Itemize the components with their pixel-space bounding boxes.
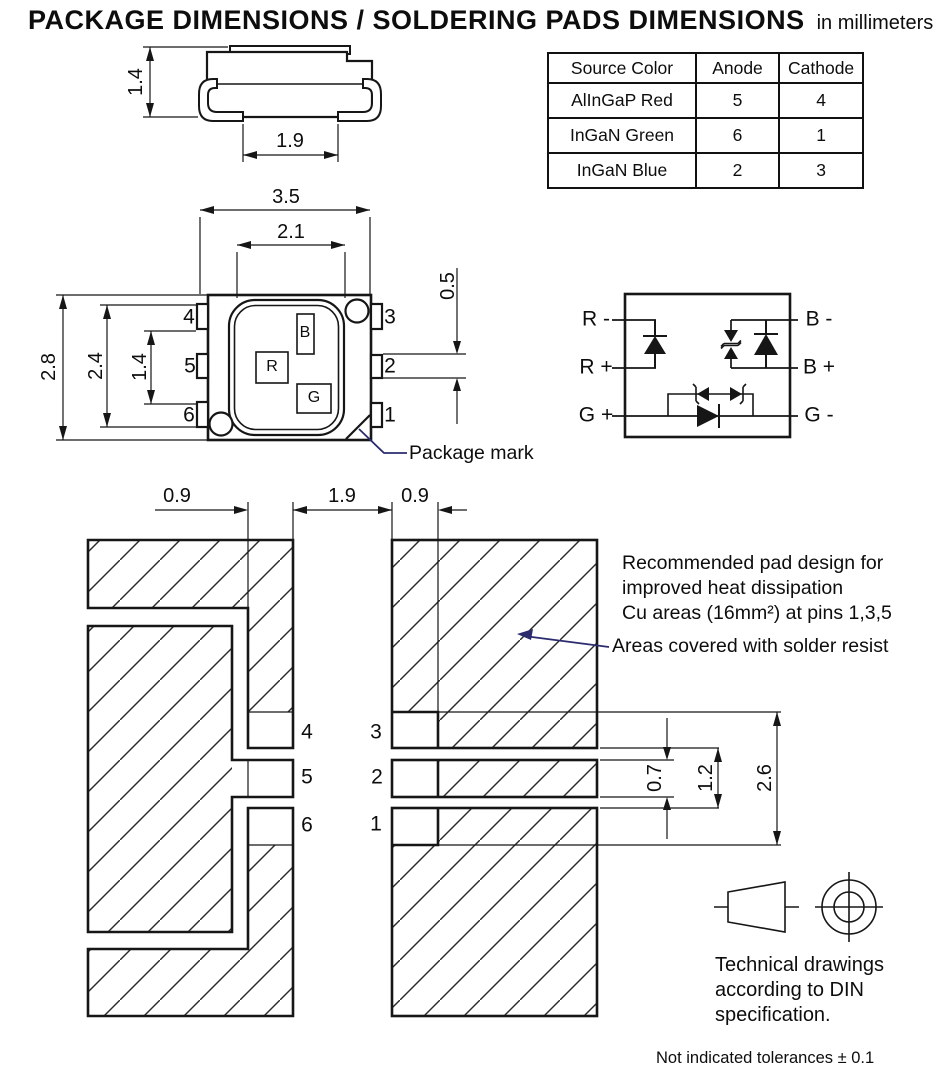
table-row: AlInGaP Red 5 4: [548, 83, 863, 118]
cell-anode: 5: [696, 83, 779, 118]
table-row: InGaN Blue 2 3: [548, 153, 863, 188]
pinout-table: Source Color Anode Cathode AlInGaP Red 5…: [547, 52, 864, 189]
pad-pin-label-6: 6: [301, 815, 313, 836]
pad-pin-label-1: 1: [370, 814, 382, 835]
side-view-drawing: [143, 46, 381, 162]
package-mark-label: Package mark: [409, 443, 534, 463]
top-view-drawing: [56, 206, 466, 453]
terminal-r-plus: R +: [579, 357, 612, 378]
page-title-main: PACKAGE DIMENSIONS / SOLDERING PADS DIME…: [28, 5, 805, 36]
pin-label-5: 5: [184, 356, 196, 377]
table-header-anode: Anode: [696, 53, 779, 83]
blue-led-symbol: [754, 334, 778, 355]
first-angle-cone-icon: [728, 882, 785, 932]
cell-anode: 6: [696, 118, 779, 153]
cell-cathode: 1: [779, 118, 863, 153]
green-led-symbol: [697, 405, 719, 427]
page-title: PACKAGE DIMENSIONS / SOLDERING PADS DIME…: [28, 5, 933, 36]
pin-label-2: 2: [384, 356, 396, 377]
cell-source: InGaN Green: [548, 118, 696, 153]
terminal-g-plus: G +: [579, 405, 613, 426]
protection-diode: [724, 347, 738, 359]
pad-design-note-line3: Cu areas (16mm²) at pins 1,3,5: [622, 601, 892, 626]
pin-label-3: 3: [384, 307, 396, 328]
cell-cathode: 3: [779, 153, 863, 188]
terminal-r-minus: R -: [582, 309, 610, 330]
cell-cathode: 4: [779, 83, 863, 118]
pad-design-note-line1: Recommended pad design for: [622, 551, 892, 576]
protection-diode: [730, 387, 742, 401]
chip-label-red: R: [266, 359, 278, 375]
terminal-b-minus: B -: [806, 309, 833, 330]
terminal-b-plus: B +: [803, 357, 835, 378]
page-title-units: in millimeters: [817, 12, 934, 35]
pin-label-1: 1: [384, 405, 396, 426]
chip-label-blue: B: [300, 325, 311, 341]
table-header-row: Source Color Anode Cathode: [548, 53, 863, 83]
protection-diode: [697, 387, 709, 401]
pin-label-6: 6: [183, 405, 195, 426]
pad-pin-label-4: 4: [301, 722, 313, 743]
pad-design-note: Recommended pad design for improved heat…: [622, 551, 892, 626]
table-header-cathode: Cathode: [779, 53, 863, 83]
din-note-line2: according to DIN: [715, 978, 884, 1003]
dim-side-lead-span: 1.9: [276, 131, 304, 151]
chip-label-green: G: [308, 390, 320, 406]
dim-pad-left-width: 0.9: [163, 486, 191, 506]
protection-diode: [724, 330, 738, 342]
pad-pin-label-2: 2: [371, 767, 383, 788]
dim-top-window: 2.1: [277, 222, 305, 242]
index-hole-bottom-left: [210, 413, 233, 436]
pad-pin-label-3: 3: [370, 722, 382, 743]
din-symbols: [714, 872, 883, 942]
dim-pad-right-width: 0.9: [401, 486, 429, 506]
table-header-source: Source Color: [548, 53, 696, 83]
cell-source: InGaN Blue: [548, 153, 696, 188]
terminal-g-minus: G -: [804, 405, 833, 426]
solder-resist-label: Areas covered with solder resist: [612, 636, 888, 657]
tolerance-note: Not indicated tolerances ± 0.1: [656, 1049, 874, 1068]
dim-side-height: 1.4: [126, 68, 146, 96]
pad-design-note-line2: improved heat dissipation: [622, 576, 892, 601]
red-led-symbol: [644, 336, 666, 354]
dim-top-pin-pitch: 1.4: [130, 353, 150, 381]
din-note-line1: Technical drawings: [715, 953, 884, 978]
datasheet-page: PACKAGE DIMENSIONS / SOLDERING PADS DIME…: [0, 0, 950, 1076]
table-row: InGaN Green 6 1: [548, 118, 863, 153]
circuit-diagram: [612, 294, 798, 437]
cell-source: AlInGaP Red: [548, 83, 696, 118]
dim-top-height: 2.8: [39, 353, 59, 381]
pin-label-4: 4: [183, 307, 195, 328]
index-hole-top-right: [346, 300, 369, 323]
dim-pad-gap: 1.9: [328, 486, 356, 506]
dim-pad-gap-vert: 1.2: [696, 764, 716, 792]
dim-top-pin-height: 0.5: [438, 272, 458, 300]
cell-anode: 2: [696, 153, 779, 188]
din-note-line3: specification.: [715, 1003, 884, 1028]
din-note: Technical drawings according to DIN spec…: [715, 953, 884, 1028]
dim-pad2-height: 0.7: [645, 764, 665, 792]
dim-top-pin-span: 2.4: [86, 352, 106, 380]
pad-pin-label-5: 5: [301, 767, 313, 788]
dim-pad-span-vert: 2.6: [755, 764, 775, 792]
dim-top-width: 3.5: [272, 187, 300, 207]
